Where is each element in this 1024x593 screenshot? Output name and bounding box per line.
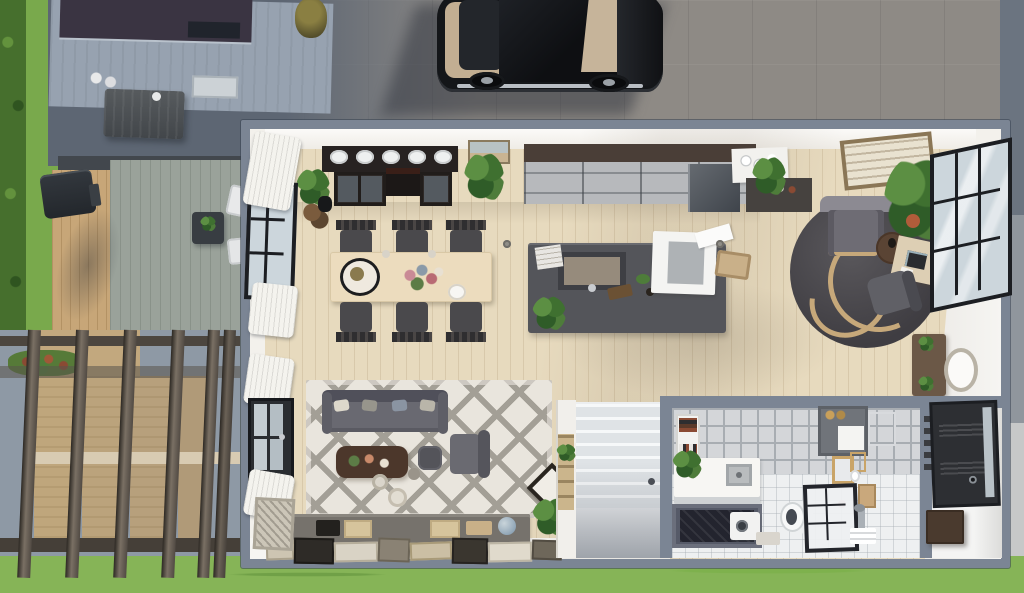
- console-drawer-1[interactable]: [344, 520, 372, 538]
- door-pane-3: [254, 439, 267, 470]
- door-pane-1: [254, 404, 267, 436]
- gallery-frame-5[interactable]: [410, 541, 453, 560]
- door-sidelight-glass: [982, 407, 994, 497]
- plate-4[interactable]: [408, 150, 426, 164]
- sofa-pillow-2: [361, 399, 377, 412]
- curtain-2[interactable]: [247, 282, 298, 339]
- island-plant[interactable]: [532, 296, 566, 332]
- chair-back: [392, 220, 432, 230]
- chair-back: [446, 332, 486, 342]
- chair-back: [392, 332, 432, 342]
- sofa[interactable]: [322, 390, 448, 434]
- oven[interactable]: [386, 168, 420, 196]
- chair-seat: [340, 302, 372, 332]
- faucet-spout: [854, 504, 865, 512]
- stair-steps: [576, 404, 662, 508]
- plate-1[interactable]: [330, 150, 348, 164]
- gallery-frame-4[interactable]: [378, 537, 411, 562]
- door-handle: [279, 434, 285, 440]
- plate-5[interactable]: [434, 150, 452, 164]
- chair-back: [336, 220, 376, 230]
- gallery-frame-6[interactable]: [452, 538, 488, 565]
- console-plant-2: [918, 376, 934, 392]
- sofa-arm-left: [322, 392, 332, 434]
- bbq-grill[interactable]: [39, 169, 97, 220]
- hedge: [0, 0, 26, 352]
- island-sink-basin: [564, 257, 620, 285]
- floorplan-screenshot: [0, 0, 1024, 593]
- leaning-art-left[interactable]: [253, 497, 296, 551]
- dumpster-cup: [152, 92, 161, 101]
- chair-back: [446, 220, 486, 230]
- gallery-frame-2[interactable]: [294, 538, 334, 565]
- coffee-table-decor: [344, 450, 400, 472]
- car-rear-glass: [459, 0, 503, 70]
- chair-seat: [396, 302, 428, 332]
- floor-light-2: [716, 240, 724, 248]
- scattered-papers: [86, 70, 120, 90]
- window-mullion-h2: [934, 236, 1000, 253]
- dining-chair-b1[interactable]: [336, 300, 376, 342]
- bath-wall-shelf[interactable]: [868, 412, 896, 446]
- console-drawer-2[interactable]: [430, 520, 460, 538]
- bath-step-mat: [756, 532, 780, 545]
- towel-rail[interactable]: [850, 528, 876, 544]
- white-bowl[interactable]: [448, 284, 466, 300]
- window-mullion-h: [251, 217, 285, 221]
- glass-cabinet-right[interactable]: [420, 172, 452, 206]
- cabinet-brass-jars: [824, 410, 848, 420]
- floor-vase-1[interactable]: [372, 474, 388, 490]
- dumpster[interactable]: [103, 89, 185, 140]
- washer-door: [736, 520, 748, 532]
- entry-bench[interactable]: [926, 510, 964, 544]
- sofa-pillow-1: [333, 399, 349, 412]
- front-door[interactable]: [932, 403, 997, 505]
- gallery-frame-7[interactable]: [488, 542, 532, 563]
- dining-chair-b2[interactable]: [392, 300, 432, 342]
- roof-skylight: [188, 21, 240, 38]
- monstera-pot: [906, 214, 920, 228]
- serving-food: [350, 267, 364, 281]
- shelf-books-1: [679, 418, 697, 432]
- island-faucet: [588, 284, 596, 292]
- shower-mullion-v: [825, 488, 829, 540]
- entry-coat-strip: [924, 414, 932, 470]
- window-mullion-h: [934, 188, 1000, 205]
- window-mullion-v: [955, 153, 958, 296]
- console-tray: [466, 521, 492, 535]
- vanity-plant[interactable]: [672, 450, 702, 480]
- floor-light-1: [503, 240, 511, 248]
- console-dark-box: [316, 520, 340, 536]
- gallery-frame-3[interactable]: [334, 542, 378, 563]
- window-mullion-h2: [250, 251, 284, 255]
- console-plant-1: [918, 336, 934, 352]
- sofa-pillow-4: [419, 399, 435, 412]
- island-greens: [636, 274, 650, 284]
- sofa-arm-right: [438, 392, 448, 434]
- front-door-handle: [969, 476, 977, 484]
- toilet-bowl-opening: [786, 509, 797, 525]
- armchair-seat: [450, 434, 480, 474]
- pouf[interactable]: [418, 446, 442, 470]
- plate-3[interactable]: [382, 150, 400, 164]
- table-cup-2: [428, 250, 436, 258]
- office-chair[interactable]: [868, 268, 922, 316]
- gold-towel-ring[interactable]: [850, 452, 866, 472]
- car-hood: [617, 0, 663, 86]
- bread-tray[interactable]: [714, 250, 751, 280]
- oval-mirror[interactable]: [944, 348, 978, 392]
- floor-vase-3[interactable]: [408, 468, 420, 480]
- door-slats-1: [939, 421, 983, 437]
- plate-2[interactable]: [356, 150, 374, 164]
- chair-seat: [450, 302, 482, 332]
- door-pane-2: [270, 404, 283, 436]
- floor-vase-2[interactable]: [388, 488, 407, 507]
- console-globe[interactable]: [498, 517, 516, 535]
- sink-drain: [736, 472, 742, 478]
- door-pane-4: [270, 439, 283, 470]
- hanging-plant[interactable]: [752, 156, 786, 198]
- patio-table-plant: [200, 216, 216, 232]
- table-cup-1: [382, 250, 390, 258]
- glass-cabinet-left-mullion: [358, 174, 361, 204]
- dining-chair-b3[interactable]: [446, 300, 486, 342]
- wine-bottle: [888, 238, 896, 248]
- kettle[interactable]: [318, 196, 332, 212]
- sofa-pillow-3: [392, 399, 408, 411]
- car-hubcap-front: [603, 79, 615, 86]
- parked-car[interactable]: [437, 0, 663, 96]
- flower-centerpiece[interactable]: [398, 260, 446, 294]
- ladder-shelf-plant: [556, 444, 576, 462]
- toilet-paper-roll: [850, 470, 860, 482]
- armchair-back: [478, 430, 490, 478]
- stair-landing: [576, 508, 662, 558]
- kitchen-plant-2[interactable]: [464, 152, 504, 204]
- car-hubcap-rear: [481, 77, 493, 84]
- cabinet-white-box: [838, 426, 864, 450]
- door-slats-2: [940, 459, 984, 475]
- building-door: [192, 75, 239, 98]
- trash-barrel[interactable]: [295, 0, 327, 38]
- stair-newel-knob: [648, 478, 655, 485]
- window-mullion-v2: [978, 148, 981, 291]
- living-armchair[interactable]: [450, 430, 490, 478]
- island-books[interactable]: [535, 244, 564, 269]
- stair-right-wall: [660, 400, 672, 558]
- office-window-wall[interactable]: [930, 137, 1012, 312]
- cabinet-run-top: [524, 144, 756, 164]
- chair-back: [336, 332, 376, 342]
